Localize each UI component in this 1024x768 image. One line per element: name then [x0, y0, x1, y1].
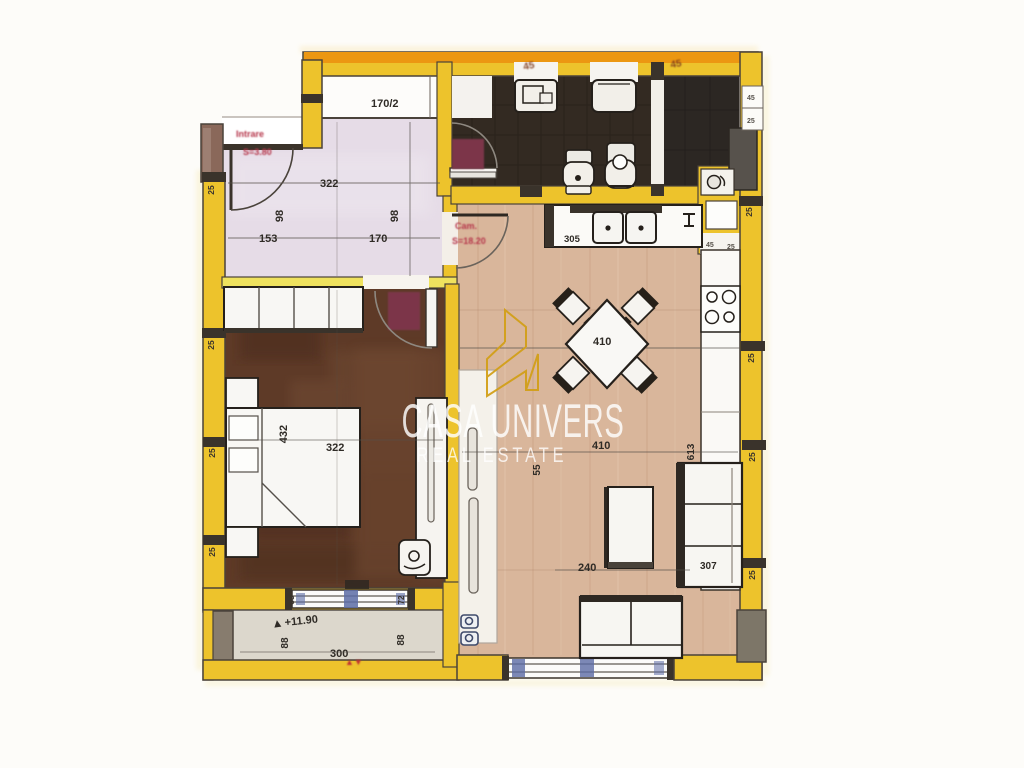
svg-text:25: 25: [727, 244, 735, 251]
svg-text:613: 613: [686, 443, 697, 460]
svg-text:S=3.80: S=3.80: [243, 147, 272, 157]
svg-text:25: 25: [206, 185, 216, 195]
svg-text:25: 25: [206, 340, 216, 350]
svg-text:25: 25: [207, 448, 217, 458]
svg-text:25: 25: [747, 118, 755, 125]
svg-text:170/2: 170/2: [371, 98, 399, 110]
svg-text:REAL ESTATE: REAL ESTATE: [417, 443, 568, 466]
svg-text:45: 45: [706, 242, 714, 249]
svg-text:307: 307: [700, 561, 717, 572]
svg-text:25: 25: [747, 570, 757, 580]
svg-text:Intrare: Intrare: [236, 129, 264, 139]
svg-text:25: 25: [744, 207, 754, 217]
svg-text:▲: ▲: [270, 615, 284, 631]
svg-text:432: 432: [278, 425, 290, 443]
svg-text:88: 88: [396, 634, 407, 646]
svg-text:98: 98: [274, 210, 286, 222]
svg-text:240: 240: [578, 562, 596, 574]
svg-text:170: 170: [369, 233, 387, 245]
svg-text:322: 322: [320, 178, 338, 190]
svg-text:72: 72: [397, 595, 406, 604]
svg-text:25: 25: [746, 353, 756, 363]
svg-text:25: 25: [207, 547, 217, 557]
svg-text:153: 153: [259, 233, 277, 245]
svg-text:35: 35: [287, 595, 296, 604]
svg-text:Cam.: Cam.: [455, 221, 477, 231]
svg-text:305: 305: [564, 234, 581, 245]
svg-text:45: 45: [747, 95, 755, 102]
svg-text:▲▼: ▲▼: [345, 657, 363, 667]
svg-text:98: 98: [389, 210, 401, 222]
svg-text:322: 322: [326, 442, 344, 454]
svg-text:88: 88: [280, 637, 291, 649]
svg-text:410: 410: [593, 336, 611, 348]
svg-text:S=18.20: S=18.20: [452, 236, 486, 246]
svg-text:25: 25: [747, 452, 757, 462]
svg-text:CASA UNIVERS: CASA UNIVERS: [402, 396, 625, 448]
